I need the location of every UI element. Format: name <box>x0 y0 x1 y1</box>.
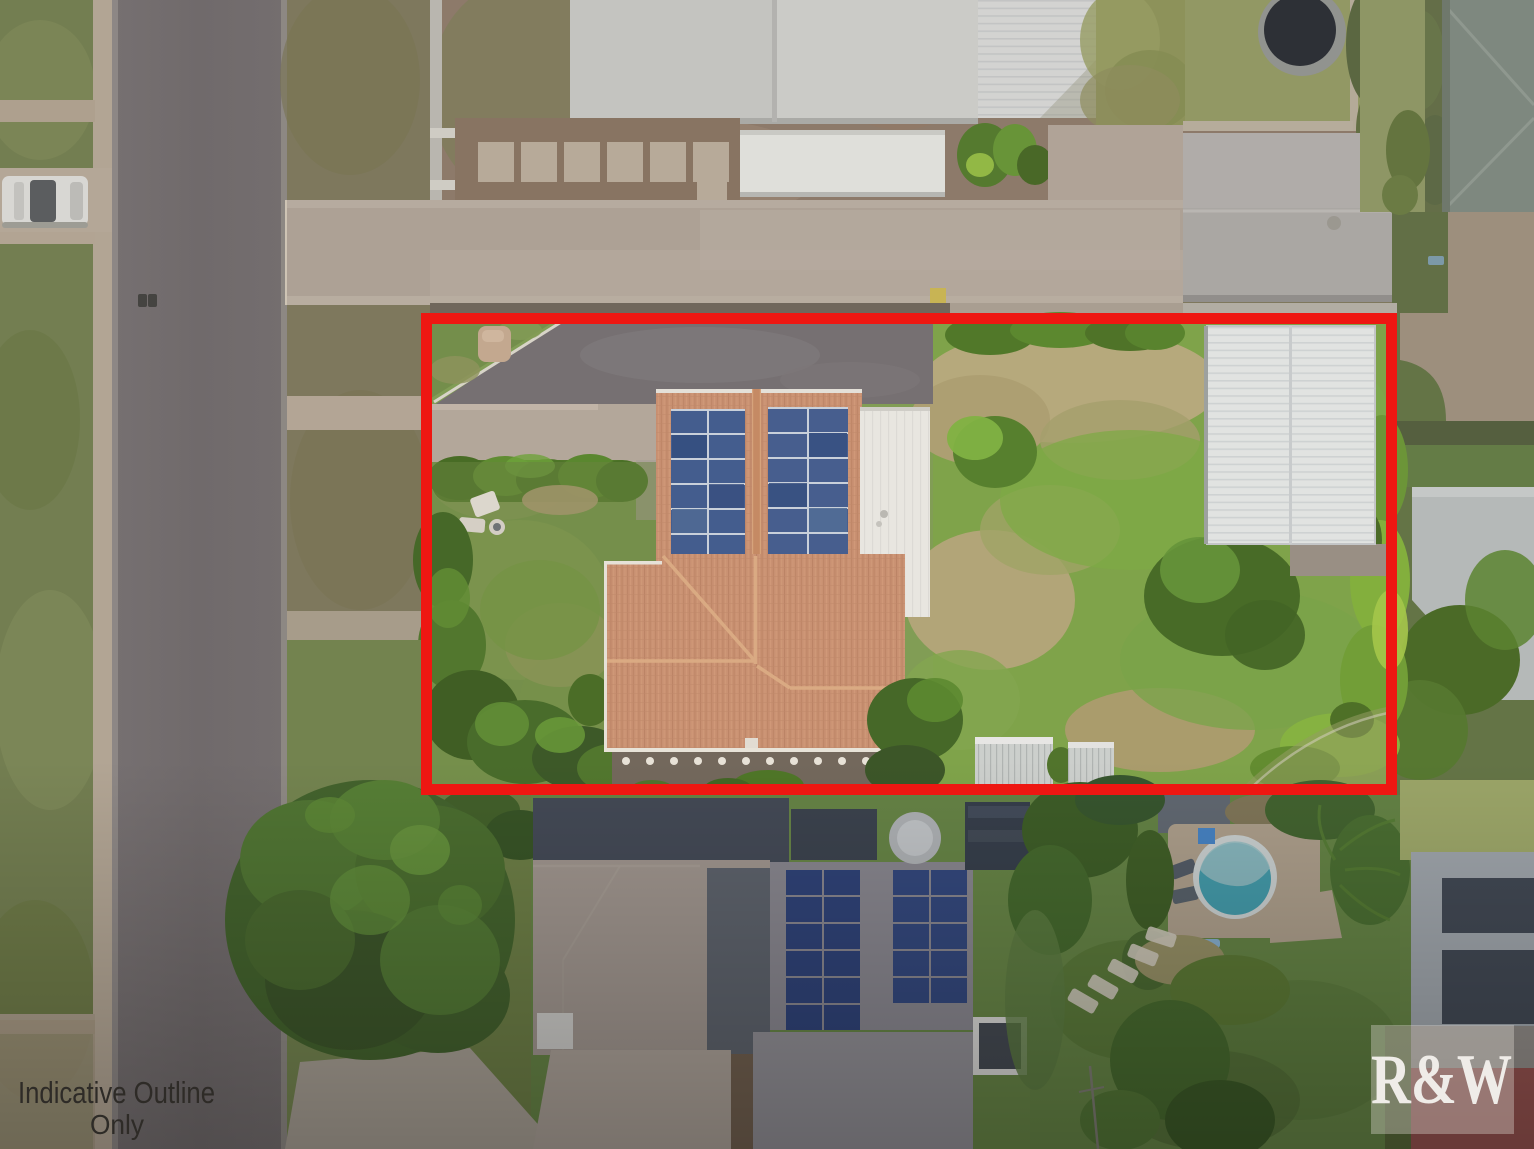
svg-text:R&W: R&W <box>1371 1041 1512 1119</box>
svg-text:Only: Only <box>90 1109 144 1140</box>
svg-text:Indicative Outline: Indicative Outline <box>18 1075 215 1110</box>
